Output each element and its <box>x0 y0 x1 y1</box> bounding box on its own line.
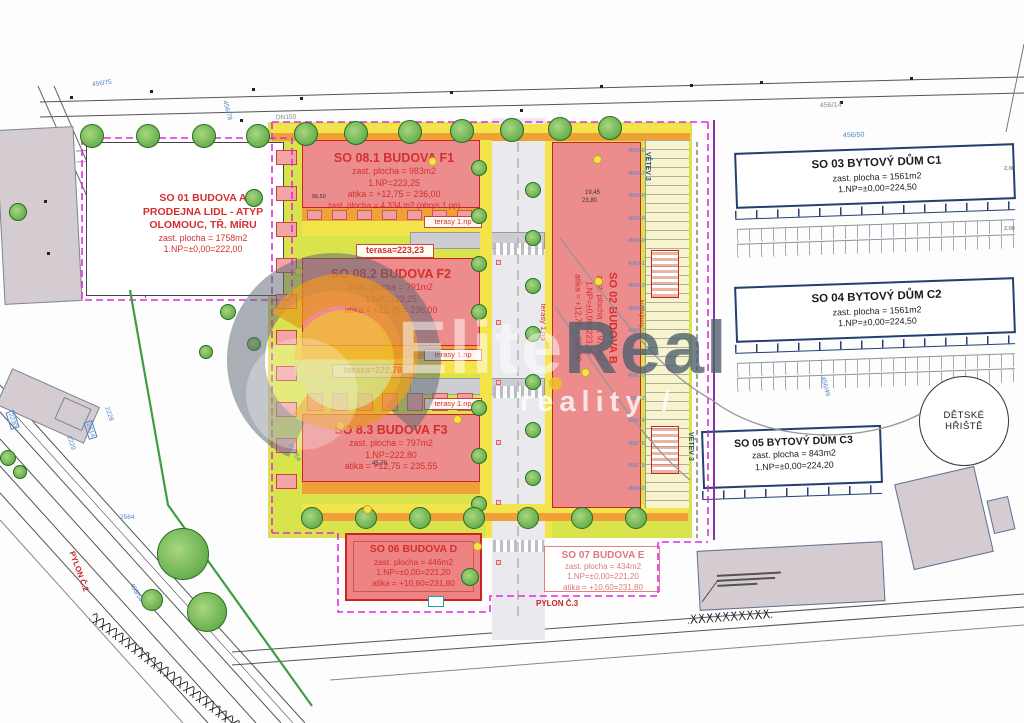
guardrail-hatch <box>688 609 772 624</box>
label-text: atika = +10,60=231,80 <box>545 583 661 593</box>
playground-label: HŘIŠTĚ <box>945 421 983 432</box>
utility-mark-icon <box>520 109 523 112</box>
label-so01: SO 01 BUDOVA A PRODEJNA LIDL - ATYP OLOM… <box>118 192 288 256</box>
building-so03: SO 03 BYTOVÝ DŮM C1 zast. plocha = 1561m… <box>734 143 1016 209</box>
parcel-456-50: 456/50 <box>843 132 865 140</box>
tram-diagonal-lines <box>0 385 305 723</box>
label-text: SO 08.2 BUDOVA F2 <box>308 266 474 282</box>
terasy-label-1: terasy 1.np <box>424 216 482 228</box>
garden-cell <box>276 150 297 165</box>
teal-box <box>428 596 444 607</box>
label-so081: SO 08.1 BUDOVA F1 zast. plocha = 983m2 1… <box>306 150 482 211</box>
dn150-label: DN150 <box>276 114 296 122</box>
label-text: 1.NP=223,25 <box>308 294 474 305</box>
label-text: zast. plocha = 434m2 <box>545 562 661 572</box>
label-text: OLOMOUC, TŘ. MÍRU <box>118 219 288 233</box>
utility-mark-icon <box>300 97 303 100</box>
playground-label: DĚTSKÉ <box>943 410 984 421</box>
gray-building-bottomright-small <box>986 496 1015 534</box>
playground-circle: DĚTSKÉ HŘIŠTĚ <box>919 376 1009 466</box>
parcel-number: 456/80 <box>628 486 645 492</box>
tree-icon <box>157 528 209 580</box>
utility-mark-icon <box>150 90 153 93</box>
parcel-456-75: 456/75 <box>92 79 113 89</box>
watermark-subtitle: reality / <box>520 386 676 419</box>
building-so06: SO 06 BUDOVA D zast. plocha = 446m2 1.NP… <box>345 533 482 601</box>
garden-cell <box>276 366 297 381</box>
dim-23-80: 23,80 <box>582 198 597 204</box>
illegible-note-line <box>717 583 757 587</box>
terasa-223-label: terasa=223,23 <box>356 244 434 258</box>
label-text: SO 07 BUDOVA E <box>545 549 661 562</box>
bottom-strip-orange <box>302 513 688 521</box>
building-so07: SO 07 BUDOVA E zast. plocha = 434m2 1.NP… <box>544 546 660 592</box>
utility-mark-icon <box>450 91 453 94</box>
label-text: atika = +12,75 = 236,00 <box>306 189 482 200</box>
garden-cell <box>276 330 297 345</box>
illegible-note-line <box>717 577 775 582</box>
dim-19-45: 19,45 <box>585 190 600 196</box>
balcony-cell <box>332 210 347 220</box>
balcony-cell <box>307 210 322 220</box>
label-text: SO 08.1 BUDOVA F1 <box>306 150 482 166</box>
utility-mark-icon <box>600 85 603 88</box>
utility-mark-icon <box>910 77 913 80</box>
parcel-number: 456/57 <box>628 171 645 177</box>
balcony-cell <box>407 210 422 220</box>
terasy-label-3: terasy 1.np <box>424 398 482 410</box>
label-text: zast. plocha = 4 334 m2 (obrys 1.pp) <box>306 201 482 212</box>
label-text: 1.NP=223,25 <box>306 178 482 189</box>
building-so05: SO 05 BYTOVÝ DŮM C3 zast. plocha = 843m2… <box>701 425 883 489</box>
label-text: SO 8.3 BUDOVA F3 <box>308 422 474 438</box>
label-so06: SO 06 BUDOVA D zast. plocha = 446m2 1.NP… <box>349 543 478 589</box>
label-so05: SO 05 BYTOVÝ DŮM C3 zast. plocha = 843m2… <box>703 432 884 476</box>
watermark-brand-left: Elite <box>398 306 564 389</box>
parcel-456-54-b: 456/54 <box>128 582 144 603</box>
label-text: 1.NP=222,80 <box>308 450 474 461</box>
label-text: atika = +12,75 = 235,55 <box>308 461 474 472</box>
railway-hatch <box>89 612 241 723</box>
label-text: zast. plocha = 446m2 <box>349 557 478 568</box>
balcony-cell <box>382 210 397 220</box>
watermark-brand: EliteReal <box>398 306 729 390</box>
utility-mark-icon <box>240 119 243 122</box>
utility-mark-icon <box>252 88 255 91</box>
vetev3-label-2: VĚTEV 3 <box>687 432 694 461</box>
parcel-number: 456/78 <box>628 463 645 469</box>
utility-mark-icon <box>690 84 693 87</box>
label-text: PRODEJNA LIDL - ATYP <box>118 206 288 220</box>
parcel-2564: 2564 <box>120 514 134 521</box>
terrace-room-cell <box>332 393 348 411</box>
bottom-road-lines <box>232 594 1024 680</box>
terrace-orange-3 <box>302 482 480 494</box>
label-text: SO 06 BUDOVA D <box>349 543 478 557</box>
pylon2-label: PYLON Č.2 <box>68 550 91 593</box>
label-text: zast. plocha = 791m2 <box>308 282 474 293</box>
pylon3-label: PYLON Č.3 <box>536 599 578 608</box>
tree-icon <box>13 465 27 479</box>
label-text: 1.NP=±0,00=221,20 <box>349 567 478 578</box>
parcel-456-78: 456/78 <box>221 100 233 121</box>
label-text: zast. plocha = 797m2 <box>308 438 474 449</box>
tree-icon <box>199 345 213 359</box>
label-text: atika = +10,60=231,80 <box>349 578 478 589</box>
dim-56-50: 56,50 <box>312 194 326 200</box>
gray-building-bottomright-long <box>697 541 886 611</box>
terrace-room-cell <box>382 393 398 411</box>
tree-icon <box>141 589 163 611</box>
parcel-number: 456/61 <box>628 261 645 267</box>
site-plan: SO 01 BUDOVA A PRODEJNA LIDL - ATYP OLOM… <box>0 0 1024 723</box>
terrace-room-cell <box>307 393 323 411</box>
terrace-room-cell <box>407 393 423 411</box>
label-text: 1.NP=±0,00=222,00 <box>118 244 288 255</box>
parcel-number: 456/56 <box>628 148 645 154</box>
label-so07: SO 07 BUDOVA E zast. plocha = 434m2 1.NP… <box>545 549 661 593</box>
parcel-number: 456/59 <box>628 216 645 222</box>
parcel-number: 456/63 <box>628 283 645 289</box>
label-so03: SO 03 BYTOVÝ DŮM C1 zast. plocha = 1561m… <box>736 151 1017 200</box>
building-so04: SO 04 BYTOVÝ DŮM C2 zast. plocha = 1561m… <box>734 277 1016 343</box>
gray-building-bottomright-tilted <box>894 466 994 570</box>
crossing-3 <box>493 540 544 552</box>
label-so04: SO 04 BYTOVÝ DŮM C2 zast. plocha = 1561m… <box>736 285 1017 334</box>
parcel-2228: 2228 <box>103 406 114 422</box>
garden-cell <box>276 474 297 489</box>
dim-2-00-a: 2,00 <box>1004 166 1015 172</box>
balcony-cell <box>357 210 372 220</box>
label-so83: SO 8.3 BUDOVA F3 zast. plocha = 797m2 1.… <box>308 422 474 473</box>
gray-building-topleft <box>0 126 83 305</box>
parcel-number: 456/76 <box>628 441 645 447</box>
utility-mark-icon <box>760 81 763 84</box>
container-stand-2 <box>651 426 679 474</box>
vetev3-label-1: VĚTEV 3 <box>644 152 651 181</box>
tree-icon <box>247 337 261 351</box>
parcel-number: 456/58 <box>628 193 645 199</box>
crossing-1 <box>493 243 544 255</box>
garden-cell <box>276 294 297 309</box>
tree-icon <box>0 450 16 466</box>
dim-45-70: 45,70 <box>372 461 387 467</box>
terrace-room-cell <box>357 393 373 411</box>
parcel-456-14: 456/14 <box>820 102 842 110</box>
top-strip-yellow <box>272 124 690 133</box>
garden-cell <box>276 402 297 417</box>
label-text: zast. plocha = 1758m2 <box>118 233 288 244</box>
garden-cell <box>276 222 297 237</box>
label-text: zast. plocha = 983m2 <box>306 166 482 177</box>
garden-cell <box>276 186 297 201</box>
label-text: SO 01 BUDOVA A <box>118 192 288 206</box>
tree-icon <box>187 592 227 632</box>
parcel-number: 456/60 <box>628 238 645 244</box>
container-stand-1 <box>651 250 679 298</box>
dim-2-00-b: 2,00 <box>1004 226 1015 232</box>
watermark-brand-right: Real <box>564 306 728 389</box>
tree-icon <box>220 304 236 320</box>
garden-cell <box>276 258 297 273</box>
utility-mark-icon <box>70 96 73 99</box>
label-text: 1.NP=±0,00=221,20 <box>545 572 661 582</box>
